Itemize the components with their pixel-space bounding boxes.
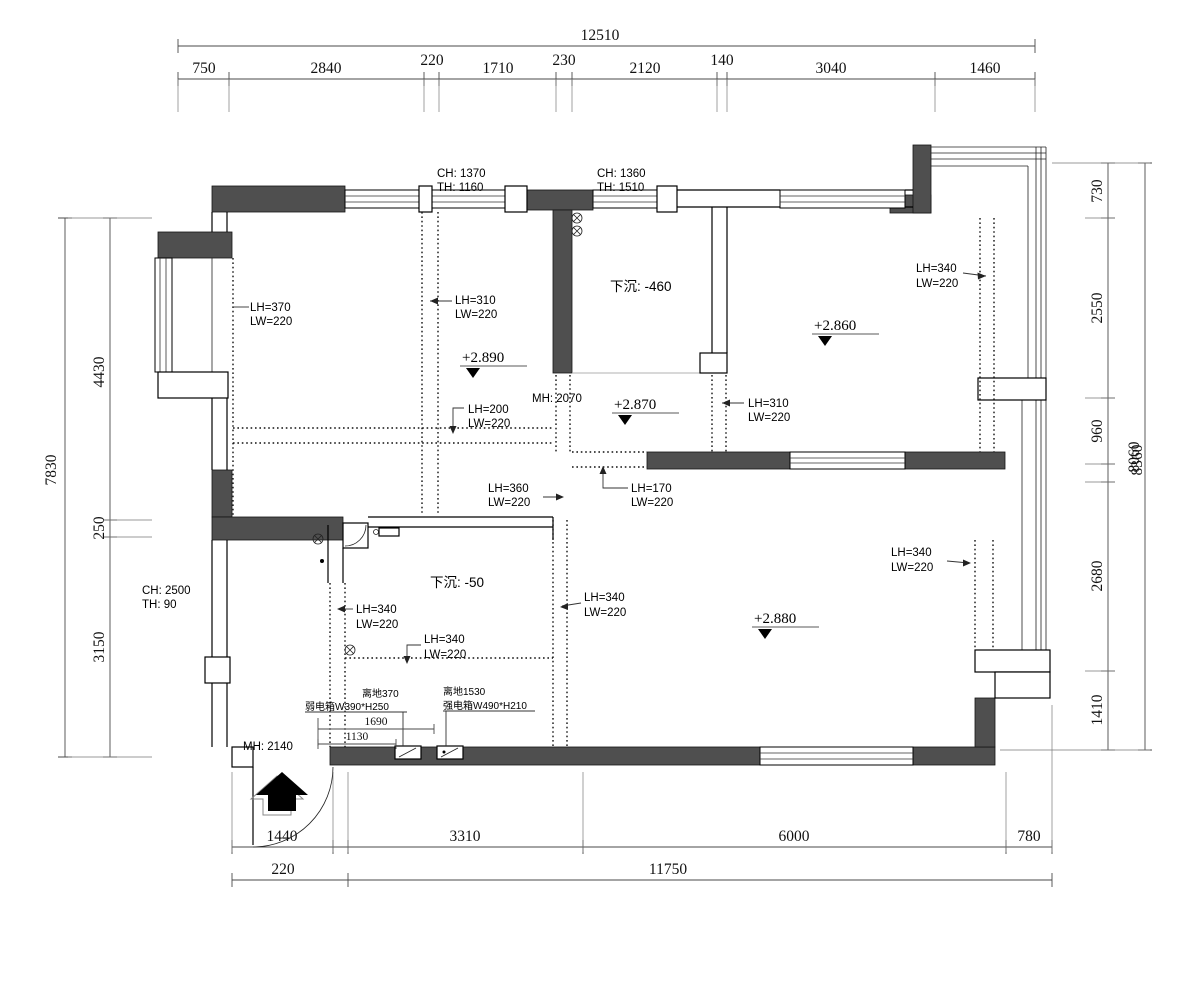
weak-current-box-icon <box>395 746 421 759</box>
dim-bottom1-seg-1: 3310 <box>450 828 481 845</box>
wall-segment <box>647 452 790 469</box>
dim-left-seg-2: 3150 <box>91 631 108 662</box>
beam-label-lh: LH=310 <box>455 295 496 307</box>
svg-text:+2.880: +2.880 <box>754 611 796 627</box>
sunken-small-label: 下沉: -50 <box>430 575 484 590</box>
dimension-chain-left: 7830 4430 250 3150 <box>43 218 152 757</box>
dim-top-seg-0: 750 <box>192 60 216 77</box>
beam-label-lw: LW=220 <box>424 649 466 661</box>
dim-top-seg-6: 140 <box>710 52 734 69</box>
beam-label-lw: LW=220 <box>891 562 933 574</box>
pier <box>657 186 677 212</box>
wall-segment <box>553 210 572 373</box>
beam-label-lh: LH=310 <box>748 398 789 410</box>
dim-left-total: 7830 <box>43 454 60 485</box>
dim-top-seg-8: 1460 <box>970 60 1001 77</box>
beam-label-lw: LW=220 <box>468 418 510 430</box>
weak-box-height-label: 离地370 <box>362 687 399 700</box>
left-wall-ch-label: CH: 2500 <box>142 585 191 597</box>
strong-box-size-label: 强电箱W490*H210 <box>443 699 527 712</box>
entrance-arrow-icon <box>251 772 308 815</box>
floor-plan-canvas: 12510 750 2840 220 1710 230 2120 140 304… <box>0 0 1200 993</box>
elevation-mark: +2.870 <box>612 397 679 425</box>
window-bottom <box>760 747 913 765</box>
beam-label-lw: LW=220 <box>631 497 673 509</box>
beam-label-lw: LW=220 <box>356 619 398 631</box>
wall-segment <box>158 232 232 258</box>
beam-label-lw: LW=220 <box>748 412 790 424</box>
beam-label-lh: LH=370 <box>250 302 291 314</box>
dim-right-seg-4: 1410 <box>1089 694 1106 725</box>
dim-right-seg-2: 960 <box>1089 419 1106 443</box>
ceiling-light-icon <box>572 226 582 236</box>
beam-label-lh: LH=340 <box>916 263 957 275</box>
window2-ch-label: CH: 1360 <box>597 168 646 180</box>
point-symbol <box>320 559 324 563</box>
beam-label-lw: LW=220 <box>455 309 497 321</box>
dim-interior-1690: 1690 <box>365 716 388 728</box>
beam-label-lw: LW=220 <box>916 278 958 290</box>
dim-left-seg-1: 250 <box>91 516 108 540</box>
pier <box>419 186 432 212</box>
dim-right-seg-1: 2550 <box>1089 292 1106 323</box>
beam-label-lh: LH=340 <box>356 604 397 616</box>
elevation-mark: +2.860 <box>812 318 879 346</box>
strong-current-box-icon <box>437 746 463 759</box>
beam-label-lh: LH=200 <box>468 404 509 416</box>
wall-segment <box>212 517 343 540</box>
dim-top-seg-2: 220 <box>420 52 444 69</box>
beam-label-lw: LW=220 <box>250 316 292 328</box>
dim-bottom2-seg-1: 11750 <box>649 861 687 878</box>
beam-label-lh: LH=340 <box>584 592 625 604</box>
left-wall-th-label: TH: 90 <box>142 599 177 611</box>
beam-label-lh: LH=170 <box>631 483 672 495</box>
elevation-mark: +2.890 <box>460 350 527 378</box>
door-frame <box>343 523 368 548</box>
wall-segment <box>913 145 931 213</box>
symbols <box>251 213 582 815</box>
dim-bottom2-seg-0: 220 <box>271 861 295 878</box>
dim-top-seg-5: 2120 <box>630 60 661 77</box>
window1-ch-label: CH: 1370 <box>437 168 486 180</box>
window-top-d <box>780 190 905 208</box>
pier <box>700 353 727 373</box>
ceiling-light-icon <box>345 645 355 655</box>
dim-right-total-overlap: 8360 <box>1129 444 1146 475</box>
sunken-large-label: 下沉: -460 <box>610 279 672 294</box>
beam-label-lw: LW=220 <box>584 607 626 619</box>
weak-box-size-label: 弱电箱W390*H250 <box>305 700 389 713</box>
pier <box>205 657 230 683</box>
wall-segment <box>527 190 593 210</box>
dim-top-seg-4: 230 <box>552 52 576 69</box>
dim-top-seg-7: 3040 <box>816 60 847 77</box>
beam-label-lh: LH=360 <box>488 483 529 495</box>
wall-segment <box>212 470 232 517</box>
dim-top-seg-1: 2840 <box>311 60 342 77</box>
elevation-mark: +2.880 <box>752 611 819 639</box>
wall-segment <box>212 186 345 212</box>
interior-dimensions: 1690 1130 <box>318 716 434 749</box>
leader-lines <box>233 273 986 747</box>
window2-th-label: TH: 1510 <box>597 182 644 194</box>
ceiling-light-icon <box>572 213 582 223</box>
dim-top-seg-3: 1710 <box>483 60 514 77</box>
svg-text:+2.870: +2.870 <box>614 397 656 413</box>
beam-label-lw: LW=220 <box>488 497 530 509</box>
pier <box>158 372 228 398</box>
floor-plan-drawing: 12510 750 2840 220 1710 230 2120 140 304… <box>0 0 1200 993</box>
dim-top-total: 12510 <box>581 27 620 44</box>
dim-left-seg-0: 4430 <box>91 356 108 387</box>
dim-right-seg-0: 730 <box>1089 179 1106 203</box>
strong-box-height-label: 离地1530 <box>443 685 486 698</box>
wall-segment <box>975 698 995 747</box>
dim-interior-1130: 1130 <box>346 731 369 743</box>
window-mid-band <box>790 452 905 469</box>
dim-right-seg-3: 2680 <box>1089 560 1106 591</box>
wall-segment <box>905 452 1005 469</box>
beam-label-lh: LH=340 <box>424 634 465 646</box>
window-left-bay <box>155 258 172 372</box>
window-top-a <box>345 190 419 208</box>
svg-text:+2.890: +2.890 <box>462 350 504 366</box>
door-mid-mh-label: MH: 2070 <box>532 393 582 405</box>
entry-mh-label: MH: 2140 <box>243 741 293 753</box>
balcony-step <box>995 672 1050 698</box>
svg-text:+2.860: +2.860 <box>814 318 856 334</box>
wall-fixture-icon <box>374 528 400 536</box>
window-sill <box>978 378 1046 400</box>
dim-bottom1-seg-3: 780 <box>1017 828 1041 845</box>
window-sill <box>975 650 1050 672</box>
elevation-marks: +2.890 +2.870 +2.860 +2.880 <box>460 318 879 639</box>
dimension-chain-top: 12510 750 2840 220 1710 230 2120 140 304… <box>178 27 1035 112</box>
beam-label-lh: LH=340 <box>891 547 932 559</box>
dim-bottom1-seg-2: 6000 <box>779 828 810 845</box>
wall-segment <box>913 747 995 765</box>
pier <box>505 186 527 212</box>
window1-th-label: TH: 1160 <box>437 182 483 194</box>
